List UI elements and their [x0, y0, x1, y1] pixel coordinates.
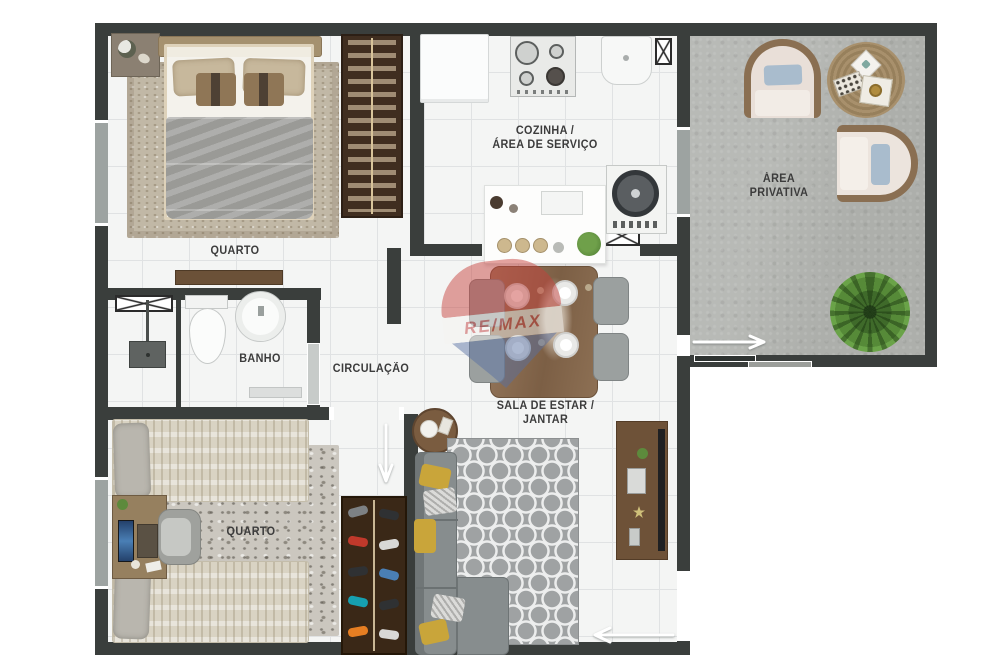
bedroom2-window — [95, 477, 108, 589]
bathroom-shelf — [249, 387, 302, 398]
vent-box-icon-bathroom — [115, 295, 173, 312]
bedroom2-label: QUARTO — [204, 525, 298, 539]
bed2a-pillow — [113, 422, 152, 498]
burner — [515, 41, 539, 65]
console-bottle — [629, 528, 640, 546]
bedroom1-dresser — [175, 270, 283, 285]
monitor-icon — [118, 520, 134, 562]
faucet-icon — [258, 306, 264, 316]
keyboard-icon — [137, 524, 158, 558]
bedroom2-door-arrow-icon — [378, 423, 394, 491]
entry-door-jamb-bottom — [677, 636, 690, 641]
bedroom1-wardrobe — [341, 34, 403, 218]
console-plant-icon — [637, 448, 648, 459]
shower-partition — [176, 300, 181, 408]
wardrobe-rail — [371, 38, 373, 214]
shoe-pair — [378, 568, 400, 582]
cup-gold-icon — [868, 83, 883, 98]
burner — [549, 44, 564, 59]
napkin-dot — [861, 59, 871, 69]
sliding-door-panel2 — [748, 361, 812, 368]
breakfast-cup — [497, 238, 512, 253]
vent-box-icon-kitchen — [655, 38, 672, 65]
wall-stub-laundry — [640, 244, 690, 256]
shower-pipe — [146, 300, 149, 344]
sofa-chaise — [457, 577, 509, 655]
tv-screen-icon — [658, 429, 665, 551]
washer-hub — [631, 189, 640, 198]
private-area-label: ÁREA PRIVATIVA — [732, 172, 826, 200]
bed1-accent-pillow-left — [196, 73, 236, 106]
desk-cup — [131, 560, 140, 569]
stove-cooktop — [510, 36, 576, 97]
private-wall-right — [925, 23, 937, 367]
shoe-pair — [347, 566, 368, 578]
stove-knobs — [517, 90, 569, 94]
floor-plan: QUARTO COZINHA / ÁREA DE SERVIÇO — [0, 0, 1000, 667]
shoe-pair — [378, 538, 399, 550]
desk-chair — [158, 509, 201, 565]
bathroom-sink — [235, 291, 286, 342]
burner — [546, 67, 565, 86]
bowl-small-icon — [509, 204, 518, 213]
wall-right-seg2 — [677, 217, 690, 339]
patio-chair-right — [837, 125, 918, 202]
patio-chair-seat — [840, 137, 868, 190]
washer-drum-icon — [612, 170, 659, 217]
wall-bathroom-right-a — [307, 288, 320, 343]
private-door-jamb-bottom — [677, 352, 690, 356]
patio-chair-pillow — [871, 144, 890, 185]
remax-watermark: RE/MAX — [437, 254, 570, 394]
living-label: SALA DE ESTAR / JANTAR — [482, 399, 609, 427]
private-wall-top — [690, 23, 937, 36]
shoe-rack — [341, 496, 407, 655]
washer-panel — [613, 221, 660, 228]
console-decor-box — [627, 468, 646, 494]
shoe-pair — [347, 625, 368, 637]
desk-paper — [145, 561, 162, 573]
wall-right-seg1 — [677, 23, 690, 127]
toilet-tank — [185, 295, 228, 309]
breakfast-cup — [515, 238, 530, 253]
desk-plant-icon — [117, 499, 128, 510]
side-table-plate — [420, 420, 438, 438]
laundry-sink — [601, 36, 652, 85]
fridge — [420, 34, 489, 103]
private-door-jamb-top — [677, 335, 690, 339]
sliding-door-panel1 — [694, 355, 756, 362]
burner — [519, 71, 534, 86]
bathroom-door-leaf — [307, 343, 320, 405]
bed1-duvet — [166, 117, 313, 219]
dining-chair — [593, 333, 629, 381]
rattan-mat — [827, 42, 905, 118]
bed1-accent-pillow-right — [244, 73, 284, 106]
entry-door-jamb-top — [677, 571, 690, 576]
kitchen-island — [484, 185, 606, 264]
decor-dish — [553, 242, 564, 253]
patio-chair-seat — [755, 90, 810, 116]
washing-machine — [606, 165, 667, 234]
tv-console — [616, 421, 668, 560]
island-plant-icon — [577, 232, 601, 256]
wall-hall-jamb — [387, 248, 401, 324]
shoe-pair — [378, 598, 399, 611]
serving-tray-icon — [859, 75, 893, 107]
private-door-arrow-icon — [692, 334, 776, 350]
dining-chair — [593, 277, 629, 325]
sofa-pillow-pattern — [422, 487, 457, 516]
shoe-pair — [347, 535, 368, 547]
kitchen-label: COZINHA / ÁREA DE SERVIÇO — [475, 124, 616, 152]
bedroom1-label: QUARTO — [188, 244, 282, 258]
wall-stub-kitchen — [410, 244, 482, 256]
patio-plant-icon — [830, 272, 910, 352]
sofa-pillow-yellow — [414, 519, 436, 553]
bedroom1-window — [95, 120, 108, 226]
console-starfish-icon — [633, 506, 645, 518]
desk-chair-seat — [161, 518, 191, 556]
breakfast-cup — [533, 238, 548, 253]
island-sink — [541, 191, 583, 215]
plant-icon — [118, 40, 136, 58]
bedroom1-plant-table — [111, 33, 160, 77]
plant-leaves-overlay — [830, 272, 910, 352]
sink-drain-icon — [623, 55, 629, 61]
patio-chair-pillow — [764, 64, 803, 85]
shoe-pair — [347, 505, 369, 519]
wall-right-seg3 — [677, 353, 690, 575]
shoe-pair — [347, 595, 368, 608]
bowl-dark-icon — [490, 196, 503, 209]
entry-door-arrow-icon — [583, 626, 675, 644]
table-cup — [585, 284, 592, 291]
bedroom2-door-jamb-left — [329, 407, 334, 420]
side-table-bottle — [438, 417, 454, 436]
bathroom-label: BANHO — [222, 352, 297, 366]
shower-drain — [146, 353, 150, 357]
pebble-icon — [137, 52, 152, 65]
sofa-seam — [416, 587, 458, 589]
shower-head-icon — [129, 341, 166, 368]
shoe-pair — [378, 508, 399, 521]
pillow-stripe — [259, 73, 268, 106]
shoe-rack-rail — [373, 500, 375, 651]
circulation-label: CIRCULAÇÃO — [324, 362, 418, 376]
patio-chair-top — [744, 39, 821, 118]
kitchen-window — [677, 127, 690, 217]
shoe-pair — [378, 629, 399, 641]
pillow-stripe — [211, 73, 220, 106]
